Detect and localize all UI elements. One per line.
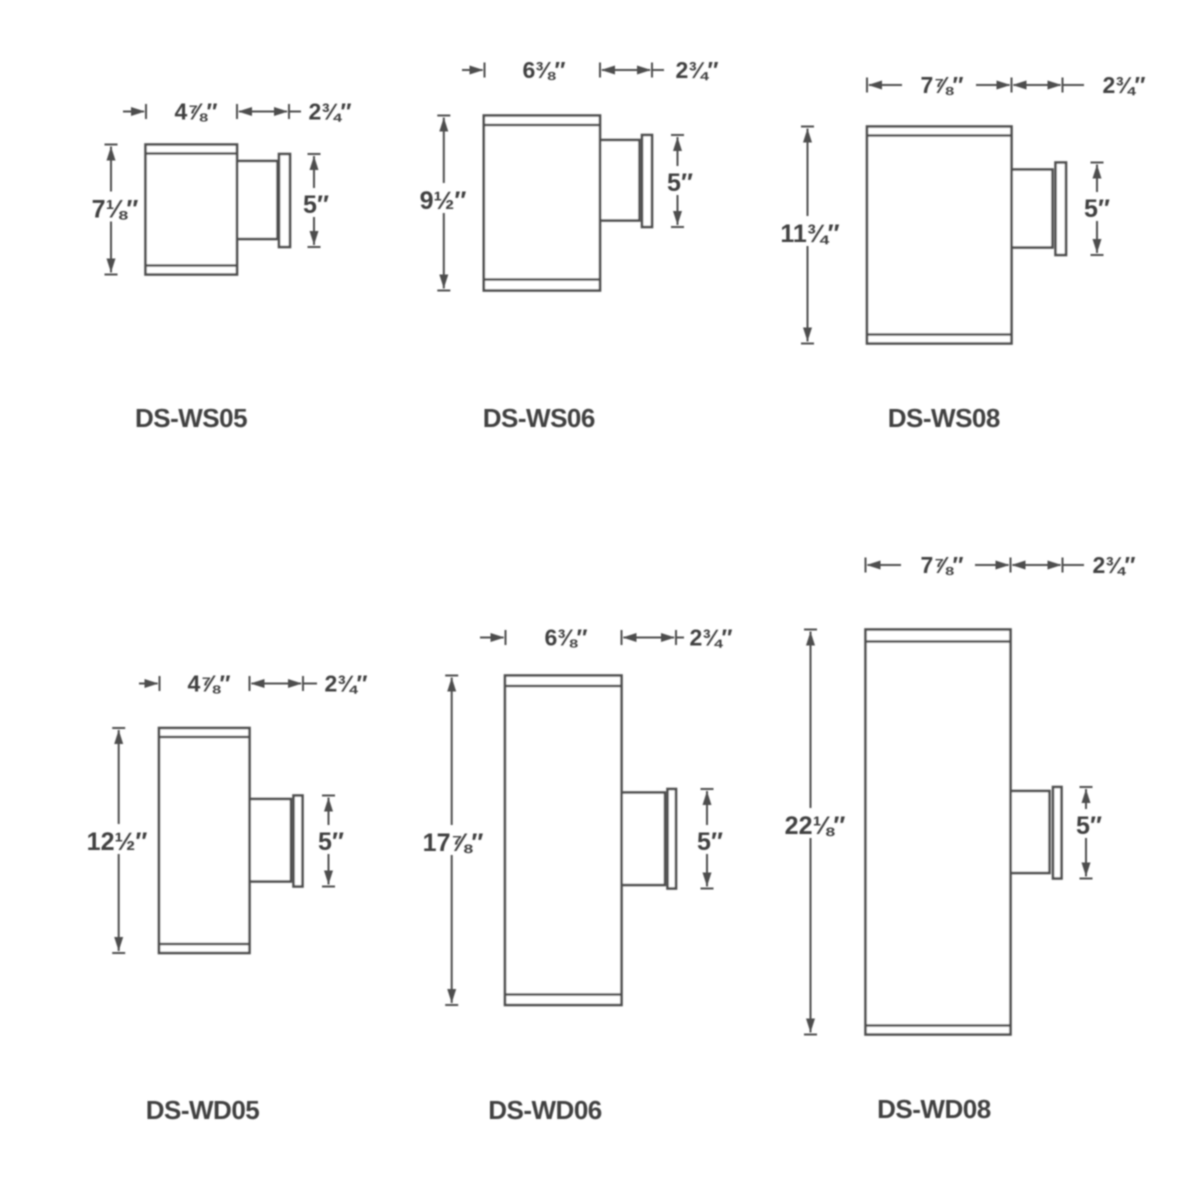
svg-text:DS-WS08: DS-WS08	[888, 403, 1000, 433]
svg-text:6⅜″: 6⅜″	[545, 625, 588, 651]
svg-text:5″: 5″	[697, 828, 723, 856]
svg-text:17⅞″: 17⅞″	[423, 829, 484, 857]
svg-text:22⅛″: 22⅛″	[785, 812, 846, 840]
svg-text:12½″: 12½″	[87, 828, 148, 856]
svg-text:DS-WD06: DS-WD06	[488, 1095, 602, 1125]
svg-text:DS-WD08: DS-WD08	[877, 1094, 991, 1124]
svg-text:4⅞″: 4⅞″	[188, 671, 231, 697]
svg-text:6⅜″: 6⅜″	[523, 57, 566, 83]
svg-text:5″: 5″	[667, 169, 693, 197]
svg-text:5″: 5″	[318, 828, 344, 856]
svg-text:11¾″: 11¾″	[780, 220, 839, 248]
svg-text:4⅞″: 4⅞″	[175, 99, 218, 125]
svg-text:DS-WS06: DS-WS06	[483, 403, 595, 433]
svg-text:2¾″: 2¾″	[690, 625, 733, 651]
svg-text:2¾″: 2¾″	[309, 99, 352, 125]
svg-text:DS-WS05: DS-WS05	[135, 403, 247, 433]
svg-text:2¾″: 2¾″	[1093, 552, 1136, 578]
svg-text:7⅞″: 7⅞″	[921, 552, 964, 578]
svg-text:7⅛″: 7⅛″	[92, 196, 139, 224]
svg-text:7⅞″: 7⅞″	[921, 72, 964, 98]
svg-text:5″: 5″	[303, 191, 329, 219]
svg-text:2¾″: 2¾″	[676, 57, 719, 83]
svg-text:9½″: 9½″	[420, 187, 467, 215]
svg-text:DS-WD05: DS-WD05	[146, 1095, 260, 1125]
svg-text:2¾″: 2¾″	[1103, 72, 1146, 98]
svg-text:5″: 5″	[1076, 812, 1102, 840]
svg-text:5″: 5″	[1084, 195, 1110, 223]
svg-text:2¾″: 2¾″	[325, 671, 368, 697]
